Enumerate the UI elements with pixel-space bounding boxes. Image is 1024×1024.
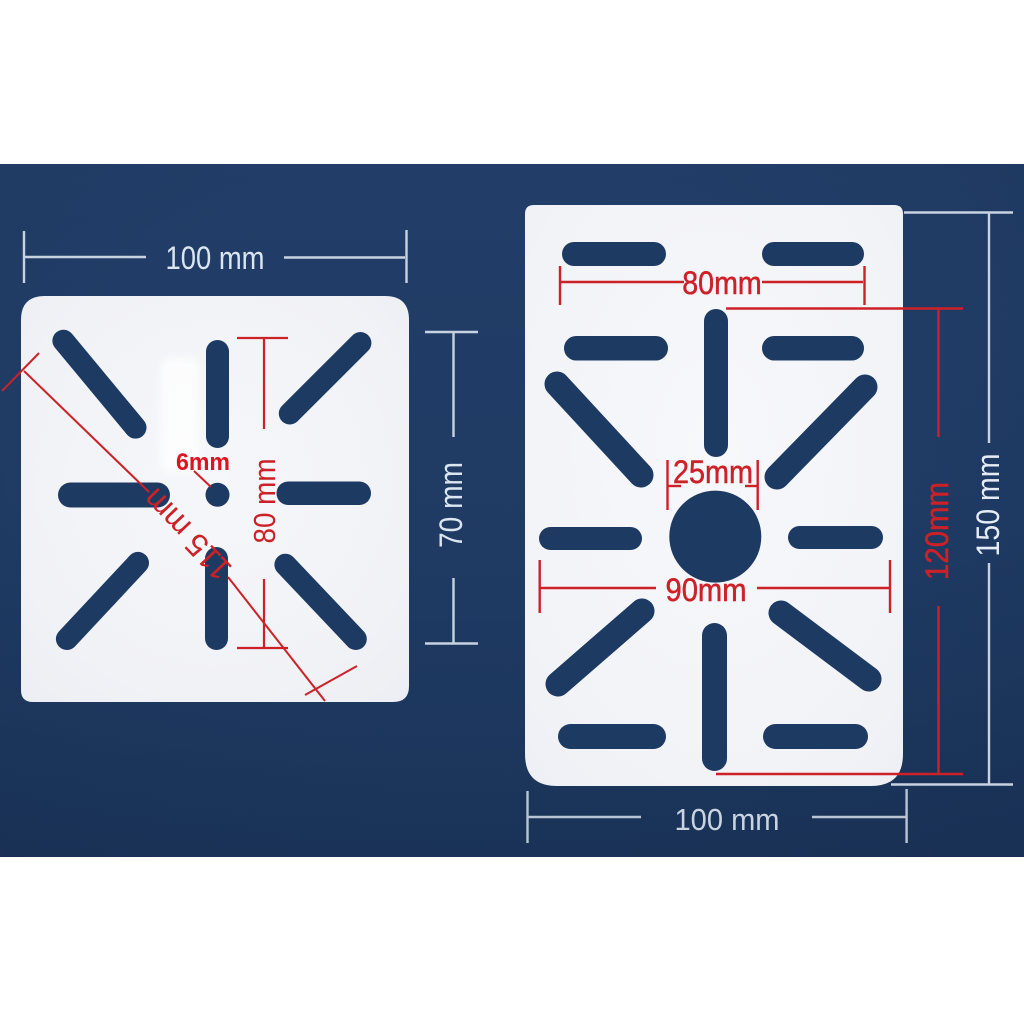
svg-text:90mm: 90mm xyxy=(666,572,747,608)
svg-text:80 mm: 80 mm xyxy=(247,459,282,544)
svg-text:100 mm: 100 mm xyxy=(166,240,265,276)
svg-text:100 mm: 100 mm xyxy=(675,802,780,837)
svg-text:70 mm: 70 mm xyxy=(433,462,469,548)
svg-text:80mm: 80mm xyxy=(682,265,762,301)
svg-text:120mm: 120mm xyxy=(919,482,955,580)
svg-text:25mm: 25mm xyxy=(673,454,753,490)
svg-text:6mm: 6mm xyxy=(176,449,230,476)
svg-text:150 mm: 150 mm xyxy=(970,454,1006,557)
